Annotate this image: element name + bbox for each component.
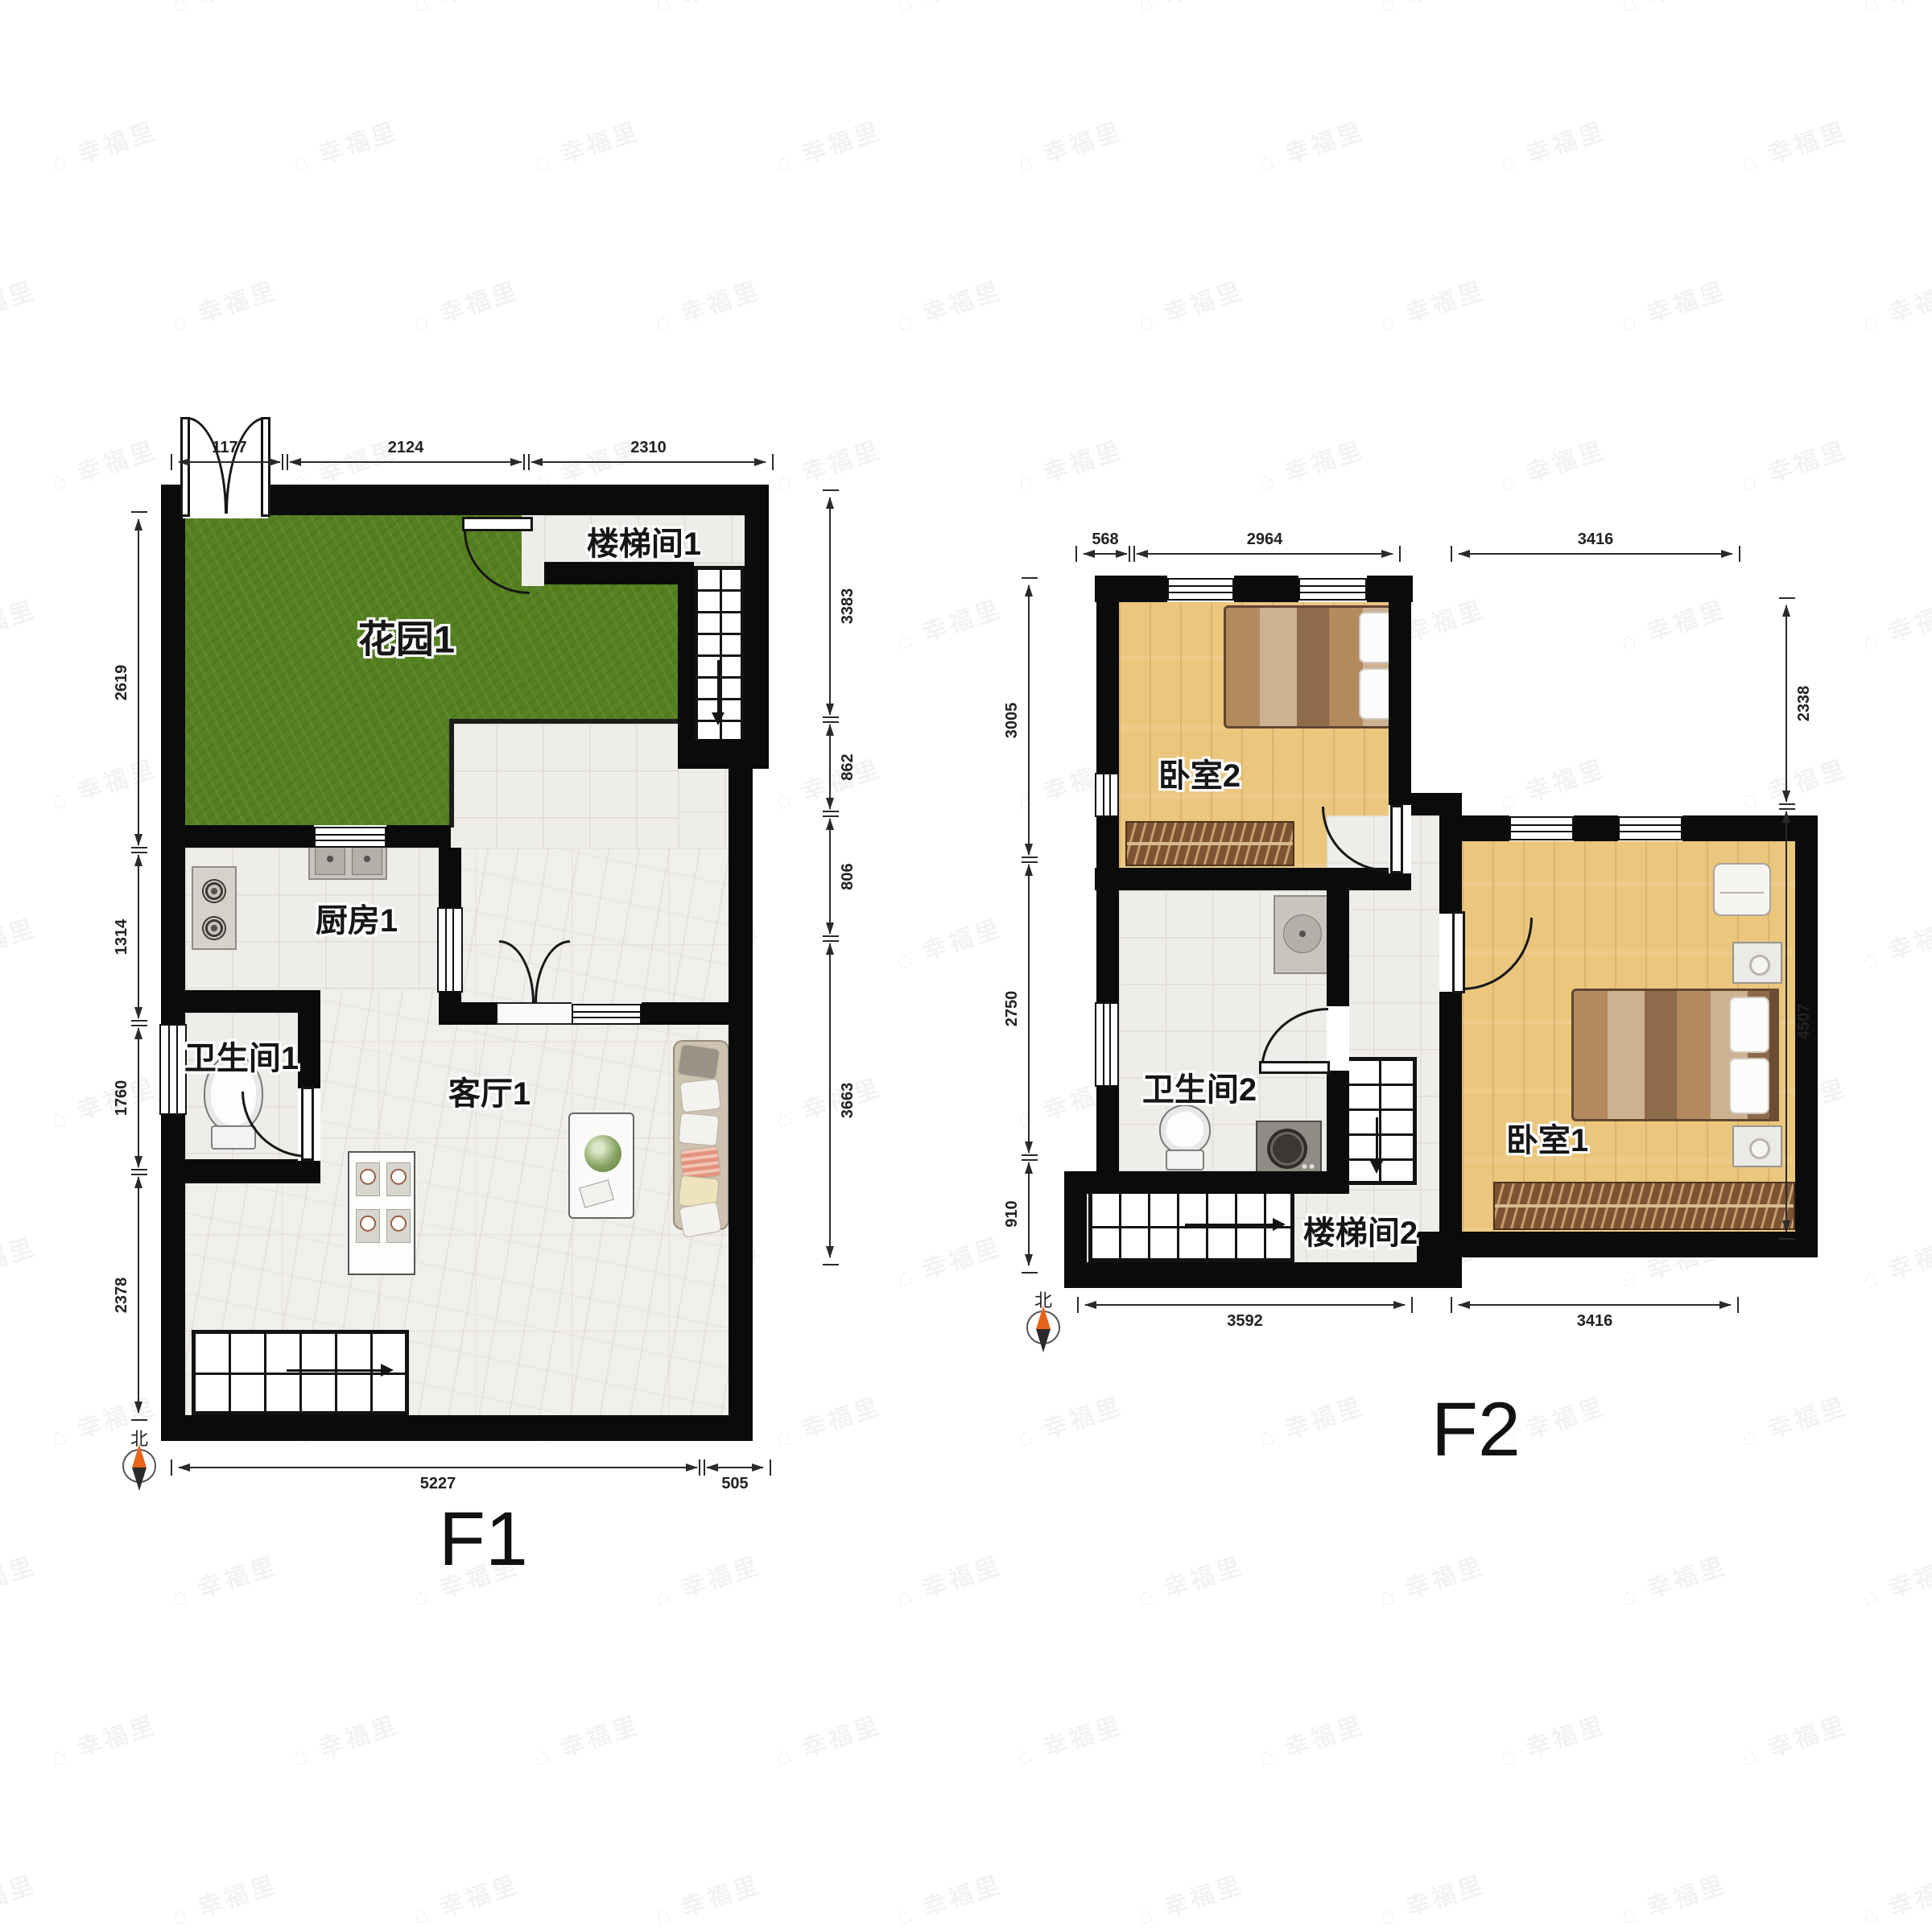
watermark-item: ⌂ 幸福里 (408, 1864, 523, 1932)
watermark-item: ⌂ 幸福里 (1857, 1227, 1932, 1294)
room-label-bedroom2: 卧室2 (1158, 749, 1241, 796)
wall (185, 990, 320, 1013)
sink-basin-icon (315, 843, 345, 875)
window (1298, 578, 1367, 601)
watermark-item: ⌂ 幸福里 (1616, 0, 1731, 19)
window (1618, 816, 1682, 840)
watermark-item: ⌂ 幸福里 (46, 111, 161, 179)
compass-north-needle (132, 1444, 147, 1468)
corridor-floor (678, 765, 729, 848)
watermark-item: ⌂ 幸福里 (1012, 1386, 1127, 1454)
door-opening (497, 1002, 572, 1025)
watermark-item: ⌂ 幸福里 (1253, 430, 1368, 497)
watermark-item: ⌂ 幸福里 (1616, 1864, 1731, 1932)
wall (161, 485, 185, 1024)
watermark-item: ⌂ 幸福里 (46, 1067, 161, 1135)
dimension: 2338 (1785, 605, 1787, 802)
watermark-item: ⌂ 幸福里 (1374, 270, 1489, 338)
watermark-item: ⌂ 幸福里 (1736, 430, 1851, 497)
stairs-icon (1088, 1190, 1294, 1262)
watermark-item: ⌂ 幸福里 (770, 111, 885, 179)
place-setting-icon (386, 1162, 411, 1196)
watermark-item: ⌂ 幸福里 (46, 749, 161, 816)
wall (1096, 1087, 1119, 1175)
watermark-item: ⌂ 幸福里 (1616, 589, 1731, 657)
sink-basin-icon (352, 843, 382, 875)
window (1095, 773, 1119, 817)
wall (1096, 1171, 1349, 1194)
watermark-item: ⌂ 幸福里 (1857, 589, 1932, 657)
wall (1574, 815, 1618, 841)
watermark-item: ⌂ 幸福里 (1616, 1546, 1731, 1613)
wall (1234, 576, 1298, 602)
sofa-pillow-icon (679, 1079, 721, 1113)
watermark-item: ⌂ 幸福里 (1495, 749, 1610, 816)
window (1167, 578, 1234, 601)
watermark-item: ⌂ 幸福里 (1616, 270, 1731, 338)
watermark-item: ⌂ 幸福里 (770, 1067, 885, 1135)
room-label-kitchen: 厨房1 (316, 894, 398, 941)
stairs-icon (192, 1330, 409, 1415)
dimension: 3592 (1085, 1304, 1405, 1306)
wall (185, 825, 314, 848)
dining-table-icon (348, 1151, 415, 1275)
watermark-item: ⌂ 幸福里 (1374, 1864, 1489, 1932)
room-label-living: 客厅1 (448, 1067, 530, 1114)
dimension: 806 (829, 819, 831, 934)
watermark-item: ⌂ 幸福里 (650, 1864, 765, 1932)
wall (544, 562, 683, 584)
dimension: 568 (1084, 553, 1127, 555)
wall (161, 1159, 320, 1183)
watermark-item: ⌂ 幸福里 (1133, 1864, 1248, 1932)
watermark-item: ⌂ 幸福里 (1012, 111, 1127, 179)
dimension: 862 (829, 724, 831, 809)
dimension: 3383 (829, 497, 831, 715)
watermark-item: ⌂ 幸福里 (1253, 111, 1368, 179)
wall (268, 485, 769, 515)
dimension: 2619 (138, 519, 139, 845)
watermark-item: ⌂ 幸福里 (408, 270, 523, 338)
watermark-item: ⌂ 幸福里 (287, 111, 402, 179)
wall (1064, 1171, 1119, 1194)
window (159, 1024, 187, 1115)
wall (1389, 602, 1411, 805)
place-setting-icon (386, 1209, 411, 1243)
dimension: 2750 (1028, 865, 1030, 1153)
dimension: 505 (707, 1467, 763, 1468)
nightstand-icon (1732, 942, 1782, 984)
wall (642, 1002, 749, 1025)
place-setting-icon (356, 1162, 380, 1196)
burner-icon (200, 877, 228, 905)
toilet-icon (1159, 1104, 1211, 1154)
dimension: 1314 (138, 855, 139, 1018)
compass-north-needle (1036, 1306, 1051, 1329)
window (1509, 816, 1574, 840)
book-icon (579, 1179, 614, 1207)
watermark-item: ⌂ 幸福里 (287, 1705, 402, 1773)
watermark-item: ⌂ 幸福里 (1495, 111, 1610, 179)
door-leaf (1259, 1061, 1330, 1074)
pillow-icon (1729, 1058, 1769, 1114)
room-label-bathroom2: 卫生间2 (1142, 1063, 1257, 1110)
window (1095, 1002, 1119, 1087)
watermark-item: ⌂ 幸福里 (46, 430, 161, 497)
watermark-item: ⌂ 幸福里 (891, 1864, 1006, 1932)
door-opening (1327, 1006, 1349, 1071)
stairs-arrow-icon (1185, 1224, 1274, 1226)
watermark-item: ⌂ 幸福里 (1012, 430, 1127, 497)
watermark-item: ⌂ 幸福里 (1374, 1546, 1489, 1613)
wall (1411, 793, 1462, 815)
watermark-item: ⌂ 幸福里 (167, 0, 282, 19)
watermark-item: ⌂ 幸福里 (650, 0, 765, 19)
garden-edge (449, 719, 680, 724)
stairs-arrow-icon (717, 660, 720, 713)
watermark-item: ⌂ 幸福里 (1133, 0, 1248, 19)
wall (161, 1415, 753, 1441)
window (437, 907, 463, 993)
wall (1327, 1071, 1349, 1175)
watermark-item: ⌂ 幸福里 (1495, 1705, 1610, 1773)
watermark-item: ⌂ 幸福里 (650, 1546, 765, 1613)
wall (1367, 576, 1413, 602)
stairs-arrow-icon (1376, 1117, 1378, 1162)
door-jamb (180, 417, 190, 517)
compass-icon (1026, 1311, 1060, 1344)
pillow-icon (1729, 997, 1769, 1053)
wall (1439, 1232, 1818, 1257)
wall (386, 825, 451, 848)
watermark-item: ⌂ 幸福里 (891, 589, 1006, 657)
burner-icon (200, 914, 228, 942)
wall (678, 739, 769, 769)
wall (1096, 576, 1119, 773)
watermark-item: ⌂ 幸福里 (891, 270, 1006, 338)
watermark-item: ⌂ 幸福里 (0, 0, 40, 19)
dimension: 3416 (1459, 1304, 1731, 1306)
watermark-item: ⌂ 幸福里 (891, 1227, 1006, 1294)
watermark-item: ⌂ 幸福里 (1253, 1705, 1368, 1773)
watermark-item: ⌂ 幸福里 (0, 1546, 40, 1613)
watermark-item: ⌂ 幸福里 (0, 908, 40, 976)
armchair-icon (1713, 863, 1771, 916)
watermark-item: ⌂ 幸福里 (1736, 1705, 1851, 1773)
watermark-item: ⌂ 幸福里 (891, 908, 1006, 976)
wall (1417, 1232, 1462, 1288)
watermark-item: ⌂ 幸福里 (46, 1705, 161, 1773)
watermark-item: ⌂ 幸福里 (167, 270, 282, 338)
watermark-item: ⌂ 幸福里 (1857, 908, 1932, 976)
room-label-garden: 花园1 (358, 609, 455, 664)
watermark-item: ⌂ 幸福里 (529, 111, 644, 179)
watermark-item: ⌂ 幸福里 (891, 1546, 1006, 1613)
watermark-item: ⌂ 幸福里 (650, 270, 765, 338)
wall (1462, 815, 1509, 841)
door-leaf (1390, 805, 1403, 873)
watermark-item: ⌂ 幸福里 (0, 270, 40, 338)
watermark-item: ⌂ 幸福里 (1857, 1864, 1932, 1932)
door-arc (187, 417, 227, 514)
wall (1439, 815, 1462, 914)
stairs-arrow-icon (287, 1369, 382, 1372)
bathroom-sink-icon (1274, 895, 1328, 974)
garden-edge (449, 719, 454, 828)
watermark-item: ⌂ 幸福里 (891, 0, 1006, 19)
dimension: 2310 (531, 461, 766, 463)
sink-basin-icon (1283, 914, 1322, 953)
room-label-bathroom1: 卫生间1 (184, 1032, 299, 1079)
wall (1327, 890, 1349, 1006)
wall (298, 1013, 320, 1088)
watermark-item: ⌂ 幸福里 (1133, 1546, 1248, 1613)
dimension: 1760 (138, 1028, 139, 1167)
wall (745, 485, 769, 769)
garden-floor (185, 515, 449, 825)
watermark-item: ⌂ 幸福里 (770, 1386, 885, 1454)
watermark-item: ⌂ 幸福里 (1736, 749, 1851, 816)
watermark-item: ⌂ 幸福里 (1857, 270, 1932, 338)
room-label-stairwell2: 楼梯间2 (1303, 1207, 1418, 1253)
floor1-title: F1 (439, 1496, 528, 1583)
wardrobe-icon (1125, 821, 1294, 866)
wall (1096, 817, 1119, 1002)
toilet-tank-icon (211, 1125, 256, 1150)
dimension: 2964 (1137, 553, 1393, 555)
sofa-pillow-icon (678, 1113, 719, 1146)
watermark-item: ⌂ 幸福里 (167, 1864, 282, 1932)
watermark-item: ⌂ 幸福里 (529, 1705, 644, 1773)
dimension: 910 (1028, 1162, 1030, 1265)
wall (729, 765, 753, 1441)
sofa-pillow-icon (678, 1044, 720, 1080)
window (314, 827, 386, 848)
watermark-item: ⌂ 幸福里 (1736, 111, 1851, 179)
wardrobe-icon (1493, 1182, 1795, 1230)
dimension: 3416 (1459, 553, 1732, 555)
floor2-title: F2 (1431, 1386, 1521, 1474)
watermark-item: ⌂ 幸福里 (1012, 1705, 1127, 1773)
flower-icon (584, 1135, 621, 1172)
wall (1064, 1262, 1462, 1288)
dimension: 3663 (829, 943, 831, 1257)
coffee-table-icon (568, 1113, 634, 1219)
stove-icon (192, 866, 237, 950)
compass-south-needle (132, 1468, 147, 1491)
wall (1095, 868, 1411, 890)
watermark-item: ⌂ 幸福里 (1857, 1546, 1932, 1613)
wall (678, 562, 694, 743)
nightstand-icon (1732, 1125, 1782, 1167)
watermark-item: ⌂ 幸福里 (1374, 0, 1489, 19)
corridor-floor (449, 724, 678, 848)
room-label-stairwell1: 楼梯间1 (587, 518, 701, 564)
door-leaf (301, 1087, 314, 1161)
watermark-item: ⌂ 幸福里 (1736, 1386, 1851, 1454)
watermark-item: ⌂ 幸福里 (0, 1864, 40, 1932)
compass-south-needle (1036, 1329, 1051, 1352)
watermark-item: ⌂ 幸福里 (408, 0, 523, 19)
dimension: 1177 (179, 461, 280, 463)
watermark-item: ⌂ 幸福里 (1253, 1386, 1368, 1454)
wall (1439, 992, 1462, 1232)
door-arc (225, 417, 266, 514)
toilet-tank-icon (1166, 1150, 1204, 1170)
place-setting-icon (356, 1209, 380, 1243)
headboard-icon (1769, 989, 1779, 1121)
watermark-item: ⌂ 幸福里 (1133, 270, 1248, 338)
dimension: 5227 (179, 1467, 697, 1468)
floorplan-canvas: ⌂ 幸福里⌂ 幸福里⌂ 幸福里⌂ 幸福里⌂ 幸福里⌂ 幸福里⌂ 幸福里⌂ 幸福里… (0, 0, 1932, 1932)
compass-icon (122, 1449, 156, 1483)
watermark-item: ⌂ 幸福里 (770, 1705, 885, 1773)
door-jamb (261, 417, 270, 517)
watermark-item: ⌂ 幸福里 (0, 589, 40, 657)
door-leaf (462, 517, 533, 531)
watermark-item: ⌂ 幸福里 (1495, 430, 1610, 497)
wall (439, 1002, 497, 1025)
watermark-item: ⌂ 幸福里 (1857, 0, 1932, 19)
watermark-item: ⌂ 幸福里 (0, 1227, 40, 1294)
room-label-bedroom1: 卧室1 (1506, 1114, 1588, 1161)
dimension: 3005 (1028, 585, 1030, 855)
wall (439, 848, 461, 907)
dimension: 2378 (138, 1177, 139, 1413)
dimension: 4507 (1785, 811, 1787, 1232)
window (572, 1004, 642, 1025)
garden-floor (522, 584, 678, 719)
dimension: 2124 (290, 461, 522, 463)
washing-machine-icon (1256, 1121, 1322, 1175)
door-leaf (1452, 911, 1465, 993)
watermark-item: ⌂ 幸福里 (770, 430, 885, 497)
watermark-item: ⌂ 幸福里 (167, 1546, 282, 1613)
